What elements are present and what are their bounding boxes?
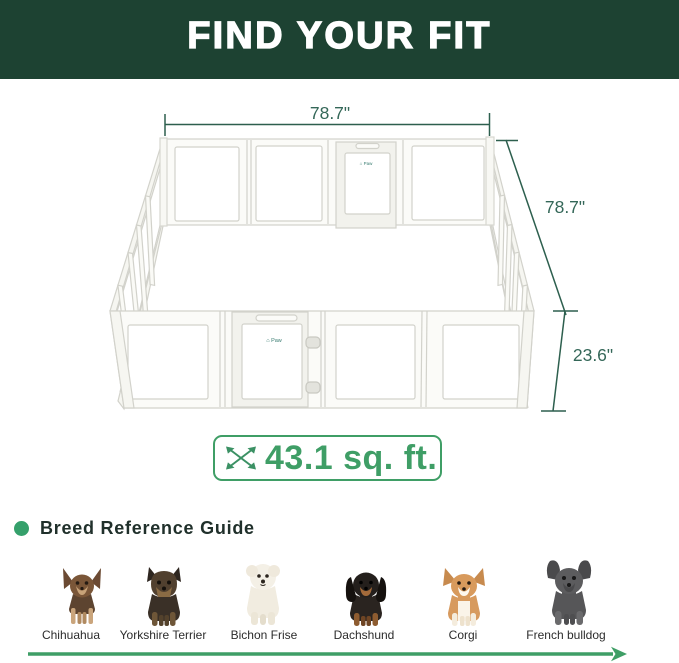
svg-text:23.6": 23.6" bbox=[573, 345, 613, 365]
svg-text:⌂ Paw: ⌂ Paw bbox=[266, 338, 282, 344]
svg-text:⌂ Paw: ⌂ Paw bbox=[360, 161, 373, 166]
svg-text:78.7": 78.7" bbox=[545, 197, 585, 217]
svg-text:78.7": 78.7" bbox=[310, 103, 350, 123]
